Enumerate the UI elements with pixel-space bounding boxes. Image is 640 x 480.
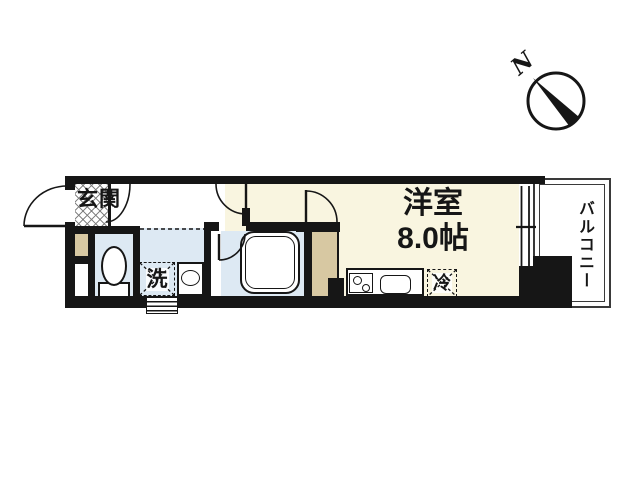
wall-toilet-left [88,226,95,296]
wall-washroom-bath [204,222,211,296]
balcony-label: バルコニー [570,189,596,301]
entrance-label: 玄関 [77,183,121,213]
entrance-door [24,186,67,226]
bath-entry-strip [211,231,221,296]
wall-bath-closet [304,222,312,296]
bathtub-inner [245,236,295,289]
wall-hall-wet-divider [65,226,140,234]
wall-closet-step [328,278,344,296]
compass-north-label: N [506,46,539,80]
fridge-space: 冷 [427,269,457,297]
wall-closet-top [296,222,340,232]
toilet-bowl [101,246,127,286]
wall-hall-partition-nub [242,208,250,226]
room-size: 8.0帖 [353,221,513,256]
stove-burner-1 [353,276,362,285]
wall-right-block [530,256,572,308]
compass-icon [528,73,584,129]
wall-left-upper [65,176,75,190]
shoe-cabinet [75,234,88,256]
wall-top [65,176,545,184]
basin-bowl [181,270,200,286]
wall-corridor-bath-left [204,222,219,231]
balcony-window-gap [519,184,533,266]
wall-bottom [65,296,572,308]
wall-closet-right-line [337,226,339,282]
room-name: 洋室 [353,186,513,221]
stove-burner-2 [362,284,370,292]
room-label: 洋室 8.0帖 [353,186,513,256]
pipe-space-niche [75,264,88,296]
kitchen-sink [380,275,411,294]
washroom-vent [146,297,178,314]
fridge-label: 冷 [432,273,452,293]
washer-space: 洗 [139,262,175,296]
washer-label: 洗 [146,268,169,291]
wall-below-window [519,266,533,308]
floorplan-page: { "labels": { "entrance": "玄関", "room_na… [0,0,640,480]
